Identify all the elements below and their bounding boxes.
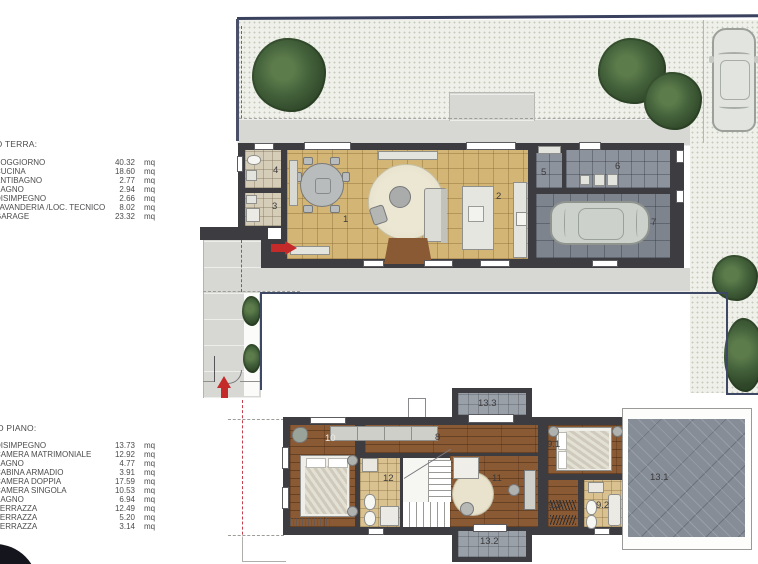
room-label-bagno: 3 xyxy=(272,201,277,212)
legend-value: 10.53 xyxy=(107,486,135,495)
nightstand xyxy=(548,426,559,437)
window xyxy=(282,487,289,509)
legend-label: TERRAZZA xyxy=(0,522,107,531)
chair xyxy=(303,157,313,165)
legend-value: 13.73 xyxy=(107,441,135,450)
legend-row: TERRAZZA3.14mq xyxy=(0,522,171,531)
room-label-cabina-93: 9.3 xyxy=(548,500,561,511)
legend-label: TERRAZZA xyxy=(0,513,107,522)
chair xyxy=(342,172,350,182)
wardrobe-row xyxy=(330,426,438,441)
window xyxy=(237,156,243,172)
legend-label: CABINA ARMADIO xyxy=(0,468,107,477)
tree-icon xyxy=(252,38,326,112)
car-mirror-left xyxy=(709,56,714,63)
single-bed xyxy=(453,457,479,479)
washbasin xyxy=(246,195,257,204)
first-floor-legend: PRIMO PIANO: DISIMPEGNO13.73mq CAMERA MA… xyxy=(0,0,190,560)
legend-row: BAGNO6.94mq xyxy=(0,495,171,504)
terrace-door xyxy=(473,524,507,532)
legend-value: 3.14 xyxy=(107,522,135,531)
wall-v xyxy=(538,417,548,535)
wall-kitchen-garage xyxy=(528,145,536,265)
legend-label: BAGNO xyxy=(0,459,107,468)
gate-arrow-head-icon xyxy=(217,376,231,388)
terrace-label-131: 13.1 xyxy=(650,472,669,483)
bush-icon xyxy=(242,296,261,326)
room-label-garage: 7 xyxy=(651,217,656,228)
tree-icon xyxy=(644,72,702,130)
chair xyxy=(330,205,340,213)
pillow xyxy=(306,458,326,468)
legend-unit: mq xyxy=(144,477,155,486)
terrace-label-133: 13.3 xyxy=(478,398,497,409)
patio xyxy=(449,92,535,121)
legend-row: TERRAZZA5.20mq xyxy=(0,513,171,522)
car-windshield xyxy=(718,52,750,57)
washer-icon xyxy=(594,174,605,186)
site-boundary-inner-right xyxy=(726,292,728,395)
gate-door-leaf xyxy=(214,356,215,382)
legend-unit: mq xyxy=(144,459,155,468)
window xyxy=(254,143,274,150)
nightstand xyxy=(347,506,358,517)
legend-title-first: PRIMO PIANO: xyxy=(0,423,36,433)
shower-tray xyxy=(380,506,399,526)
nightstand xyxy=(347,455,358,466)
car-mirror-right xyxy=(754,56,758,63)
patio-dashed-edge xyxy=(449,118,533,119)
entrance-arrow-head-icon xyxy=(285,241,297,255)
coffee-table xyxy=(389,186,411,208)
legend-row: CABINA ARMADIO3.91mq xyxy=(0,468,171,477)
car-roof xyxy=(720,60,750,100)
dashed-ref-line xyxy=(228,419,284,420)
room-label-cucina: 2 xyxy=(496,191,501,202)
window xyxy=(676,150,684,163)
car-trunk-line xyxy=(564,209,567,237)
legend-value: 4.77 xyxy=(107,459,135,468)
legend-label: CAMERA SINGOLA xyxy=(0,486,107,495)
entrance-arrow-icon xyxy=(271,244,285,252)
property-dashed-line xyxy=(242,400,243,560)
floor-plan-canvas: 1 2 3 4 5 6 7 xyxy=(0,0,758,564)
hall-cabinet xyxy=(289,160,298,206)
legend-label: BAGNO xyxy=(0,495,107,504)
car-icon xyxy=(712,28,756,132)
desk xyxy=(524,470,536,510)
room-label-antibagno: 4 xyxy=(273,165,278,176)
legend-row: DISIMPEGNO13.73mq xyxy=(0,441,171,450)
terrace-131-floor xyxy=(628,419,745,537)
toilet-icon xyxy=(247,155,261,165)
washbasin xyxy=(246,170,257,181)
legend-value: 12.92 xyxy=(107,450,135,459)
room-label-camera-10: 10 xyxy=(325,433,336,444)
sink-icon xyxy=(516,212,527,226)
chair xyxy=(303,205,313,213)
window xyxy=(466,142,516,150)
driveway-edge-line xyxy=(703,20,704,143)
pillow xyxy=(558,451,567,469)
legend-unit: mq xyxy=(144,513,155,522)
room-label-camera-91: 9.1 xyxy=(547,439,560,450)
pouf xyxy=(460,502,474,516)
pillow xyxy=(328,458,348,468)
sofa xyxy=(424,188,447,242)
site-boundary-south xyxy=(260,292,728,294)
table-center xyxy=(315,178,331,194)
room-label-bagno-92: 9.2 xyxy=(596,500,609,511)
window xyxy=(368,528,384,535)
shower-tray xyxy=(246,208,260,222)
window xyxy=(676,190,684,203)
path-bottom-edge xyxy=(240,381,260,382)
wall-v xyxy=(562,150,566,188)
chair xyxy=(330,157,340,165)
tv-cabinet xyxy=(378,151,438,160)
window xyxy=(363,260,384,267)
stairs-upper-flight xyxy=(428,460,451,502)
legend-unit: mq xyxy=(144,522,155,531)
legend-unit: mq xyxy=(144,441,155,450)
window xyxy=(424,260,453,267)
window xyxy=(480,260,510,267)
legend-label: CAMERA MATRIMONIALE xyxy=(0,450,107,459)
legend-value: 5.20 xyxy=(107,513,135,522)
window xyxy=(282,447,289,469)
legend-value: 3.91 xyxy=(107,468,135,477)
window xyxy=(592,260,618,267)
window xyxy=(310,417,346,424)
legend-row: CAMERA SINGOLA10.53mq xyxy=(0,486,171,495)
room-label-disimpegno-pt: 5 xyxy=(541,167,546,178)
property-dashed-line xyxy=(241,240,242,292)
roof-outline xyxy=(242,537,286,562)
room-label-lavanderia: 6 xyxy=(615,161,620,172)
legend-label: DISIMPEGNO xyxy=(0,441,107,450)
double-bed xyxy=(300,455,350,517)
toilet-icon xyxy=(364,494,376,510)
legend-unit: mq xyxy=(144,504,155,513)
legend-unit: mq xyxy=(144,468,155,477)
washbasin xyxy=(588,482,604,493)
wall-divider xyxy=(245,188,281,193)
legend-value: 17.59 xyxy=(107,477,135,486)
tree-icon xyxy=(712,255,758,301)
site-boundary-bottom xyxy=(726,393,758,395)
legend-row: CAMERA MATRIMONIALE12.92mq xyxy=(0,450,171,459)
legend-label: TERRAZZA xyxy=(0,504,107,513)
entry-door-gap xyxy=(268,228,281,239)
window xyxy=(304,142,351,150)
legend-unit: mq xyxy=(144,495,155,504)
laundry-sink xyxy=(580,175,590,185)
dimension-marks xyxy=(290,518,332,526)
legend-unit: mq xyxy=(144,450,155,459)
legend-row: TERRAZZA12.49mq xyxy=(0,504,171,513)
room-label-camera-11: 11 xyxy=(492,473,502,484)
double-bed xyxy=(556,427,612,471)
room-label-disimpegno: 8 xyxy=(435,432,440,443)
bath-counter xyxy=(362,458,378,472)
legend-unit: mq xyxy=(144,486,155,495)
south-paving-strip xyxy=(260,268,690,292)
dashed-ref-line xyxy=(228,535,284,536)
bathtub xyxy=(608,494,621,526)
car-rear-window xyxy=(719,104,749,109)
site-boundary-inner-left xyxy=(260,292,262,390)
bidet-icon xyxy=(364,511,376,526)
hob-icon xyxy=(468,206,484,222)
blanket xyxy=(305,466,347,514)
legend-row: BAGNO4.77mq xyxy=(0,459,171,468)
bidet-icon xyxy=(586,515,597,529)
chair xyxy=(508,484,520,496)
legend-row: CAMERA DOPPIA17.59mq xyxy=(0,477,171,486)
window xyxy=(594,528,610,535)
shelf xyxy=(538,146,561,154)
window xyxy=(579,142,601,150)
room-label-soggiorno: 1 xyxy=(343,214,348,225)
room-label-bagno-12: 12 xyxy=(383,473,394,484)
garage-car-icon xyxy=(550,201,650,245)
blanket xyxy=(565,431,609,469)
legend-value: 12.49 xyxy=(107,504,135,513)
sofa-back xyxy=(441,189,447,243)
car-hood-line xyxy=(636,209,639,237)
legend-value: 6.94 xyxy=(107,495,135,504)
tree-icon xyxy=(724,318,758,392)
terrace-label-132: 13.2 xyxy=(480,536,499,547)
legend-label: CAMERA DOPPIA xyxy=(0,477,107,486)
bush-icon xyxy=(243,344,261,373)
plant-icon xyxy=(292,427,308,443)
wardrobe-hangers xyxy=(550,515,576,525)
stairs-lower-flight xyxy=(403,502,450,527)
terrace-door xyxy=(468,414,514,423)
dryer-icon xyxy=(607,174,618,186)
dining-table xyxy=(300,163,344,207)
car-cabin xyxy=(578,208,624,240)
